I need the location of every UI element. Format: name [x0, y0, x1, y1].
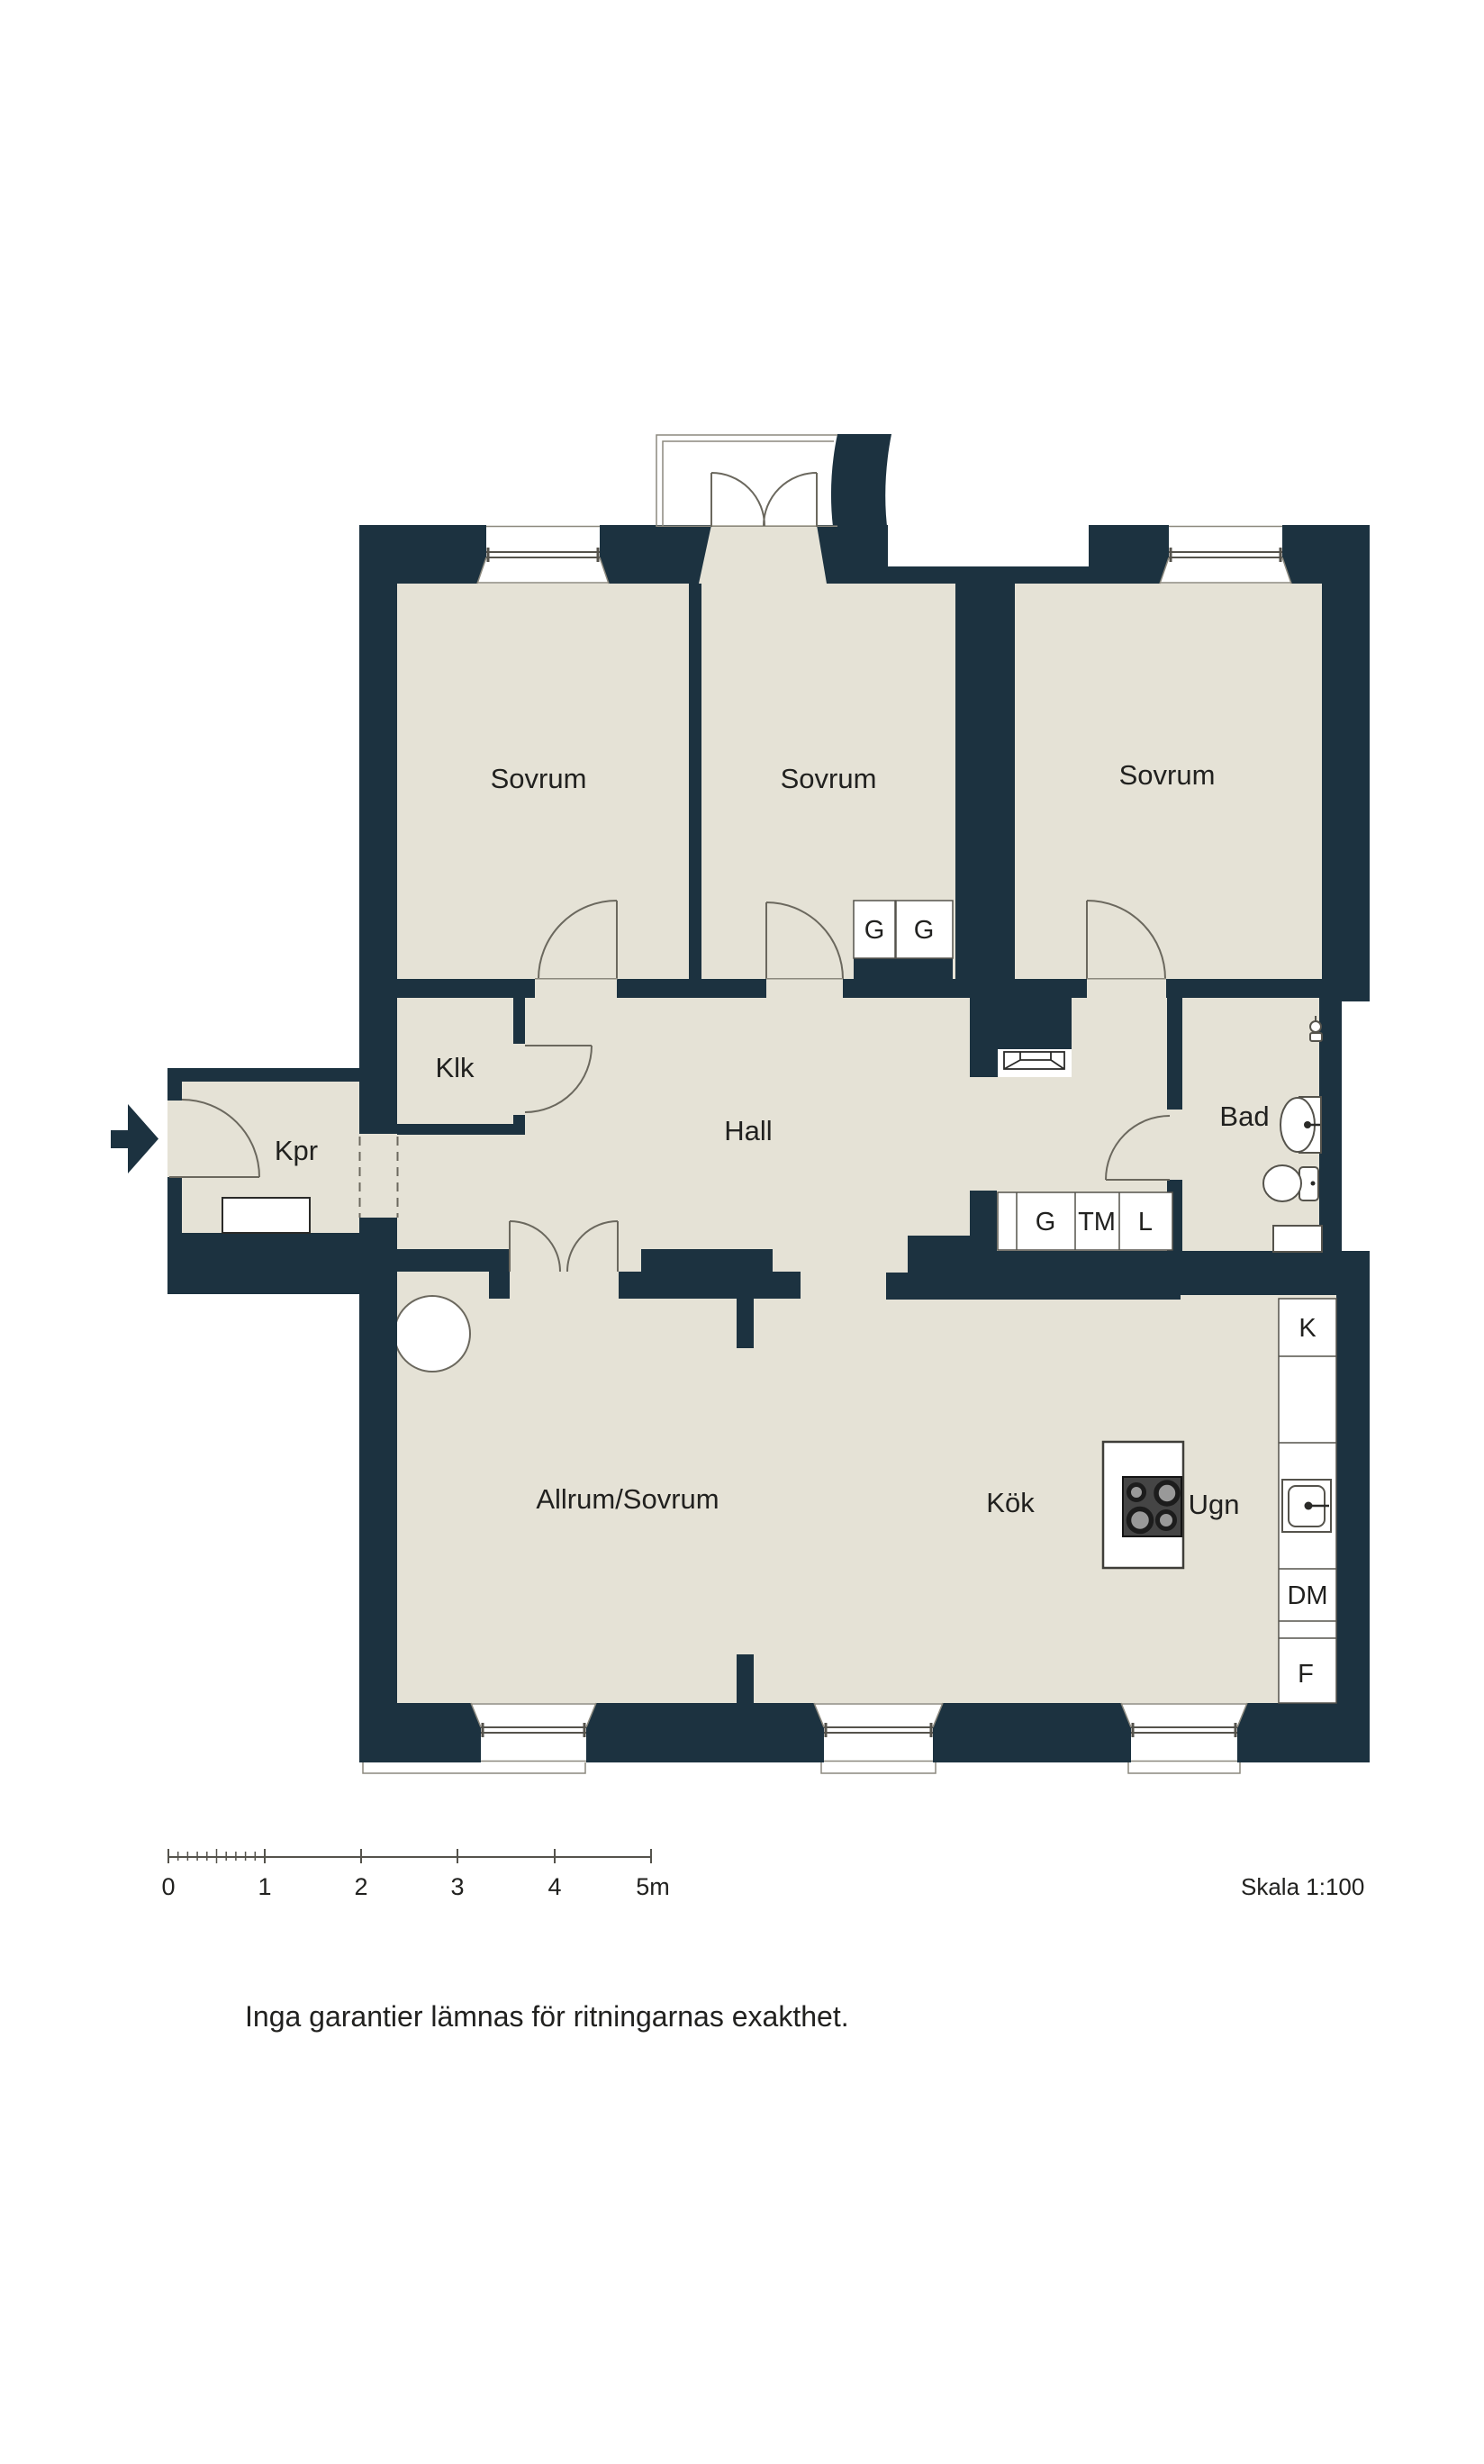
svg-text:Hall: Hall [724, 1115, 772, 1146]
svg-text:Klk: Klk [435, 1052, 475, 1083]
svg-text:Inga garantier lämnas för ritn: Inga garantier lämnas för ritningarnas e… [245, 2000, 849, 2033]
svg-text:Kpr: Kpr [275, 1135, 318, 1166]
svg-text:Ugn: Ugn [1189, 1489, 1240, 1520]
svg-text:DM: DM [1287, 1581, 1327, 1610]
svg-text:3: 3 [450, 1873, 464, 1900]
svg-text:4: 4 [547, 1873, 561, 1900]
svg-text:Sovrum: Sovrum [781, 763, 877, 794]
svg-text:Bad: Bad [1219, 1101, 1269, 1132]
svg-text:Sovrum: Sovrum [491, 763, 587, 794]
svg-text:Skala 1:100: Skala 1:100 [1241, 1873, 1364, 1900]
svg-text:G: G [914, 916, 935, 945]
svg-text:TM: TM [1078, 1208, 1116, 1237]
svg-text:2: 2 [354, 1873, 367, 1900]
svg-text:F: F [1298, 1660, 1314, 1689]
svg-text:G: G [864, 916, 885, 945]
svg-text:1: 1 [258, 1873, 271, 1900]
svg-text:0: 0 [161, 1873, 175, 1900]
svg-text:Sovrum: Sovrum [1119, 759, 1216, 791]
svg-text:K: K [1298, 1314, 1317, 1343]
svg-text:L: L [1138, 1208, 1153, 1237]
svg-text:Kök: Kök [986, 1487, 1035, 1518]
svg-text:5m: 5m [636, 1873, 670, 1900]
svg-text:G: G [1036, 1208, 1056, 1237]
svg-text:Allrum/Sovrum: Allrum/Sovrum [536, 1483, 719, 1515]
